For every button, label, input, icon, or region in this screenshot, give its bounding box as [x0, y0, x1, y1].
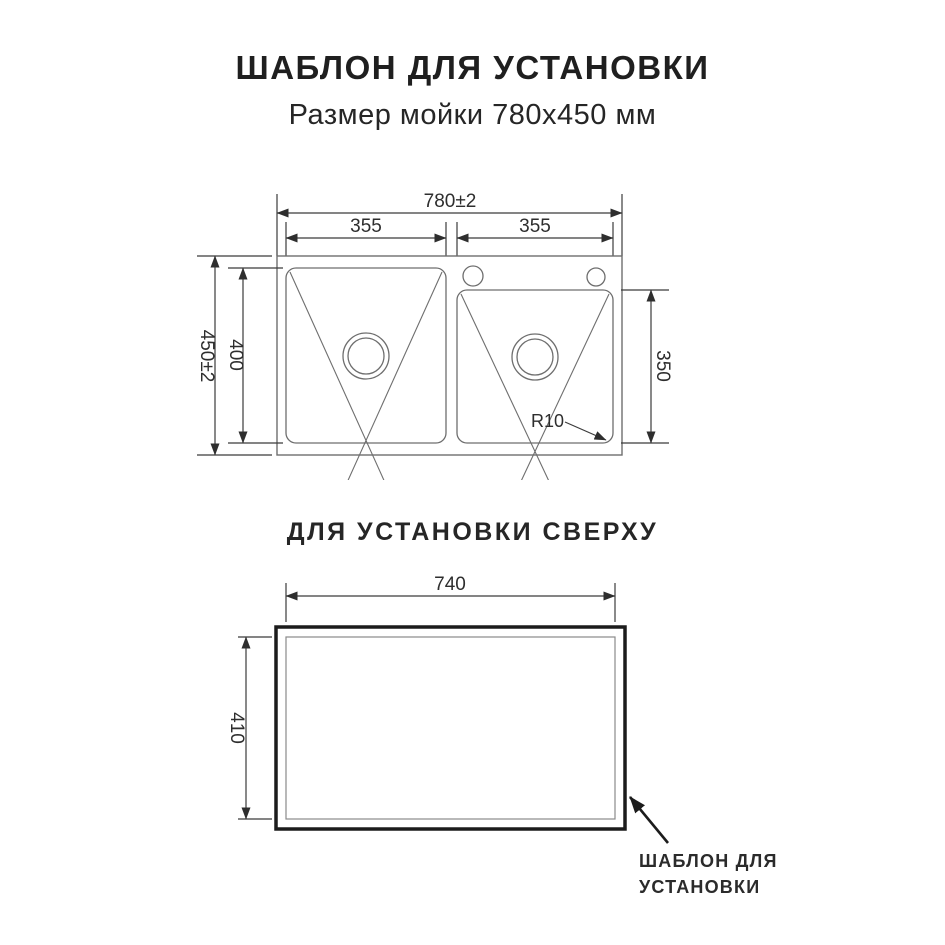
dimension-right-bowl-height: 350 [621, 290, 673, 443]
dimension-cutout-height: 410 [226, 637, 272, 819]
sink-size-subtitle: Размер мойки 780х450 мм [0, 99, 945, 132]
callout-arrow [630, 797, 668, 843]
callout-label-line1: ШАБЛОН ДЛЯ [639, 851, 778, 871]
dim-label-cutout-width: 740 [434, 574, 466, 595]
section-title-top-mount: ДЛЯ УСТАНОВКИ СВЕРХУ [0, 518, 945, 547]
sink-outer-rim [277, 256, 622, 455]
faucet-hole-left [463, 266, 483, 286]
right-bowl [457, 290, 613, 480]
left-drain-outer-circle [343, 333, 389, 379]
dimension-overall-width: 780±2 [277, 191, 622, 256]
sink-top-view-drawing: 780±2 355 355 [0, 170, 945, 480]
dim-label-overall-width: 780±2 [424, 191, 477, 212]
dim-label-left-bowl-width: 355 [350, 216, 382, 237]
template-outer-outline [276, 627, 625, 829]
cutout-template-drawing: 740 410 ШАБЛОН ДЛЯ УСТАНОВКИ [0, 570, 945, 915]
template-cut-line [286, 637, 615, 819]
dimension-left-bowl-height: 400 [225, 268, 283, 443]
dim-label-right-bowl-height: 350 [652, 350, 673, 382]
faucet-hole-right [587, 268, 605, 286]
callout-label-line2: УСТАНОВКИ [639, 877, 760, 897]
dim-label-right-bowl-width: 355 [519, 216, 551, 237]
page-title: ШАБЛОН ДЛЯ УСТАНОВКИ [0, 49, 945, 87]
left-bowl [286, 268, 446, 480]
dimension-cutout-width: 740 [286, 574, 615, 622]
dim-label-overall-height: 450±2 [196, 330, 217, 383]
right-drain-outer-circle [512, 334, 558, 380]
dimension-bowl-widths: 355 355 [286, 216, 613, 256]
dim-label-cutout-height: 410 [226, 712, 247, 744]
dim-label-left-bowl-height: 400 [225, 339, 246, 371]
template-callout: ШАБЛОН ДЛЯ УСТАНОВКИ [630, 797, 778, 897]
dim-label-corner-radius: R10 [531, 411, 564, 431]
installation-template-page: ШАБЛОН ДЛЯ УСТАНОВКИ Размер мойки 780х45… [0, 0, 945, 945]
